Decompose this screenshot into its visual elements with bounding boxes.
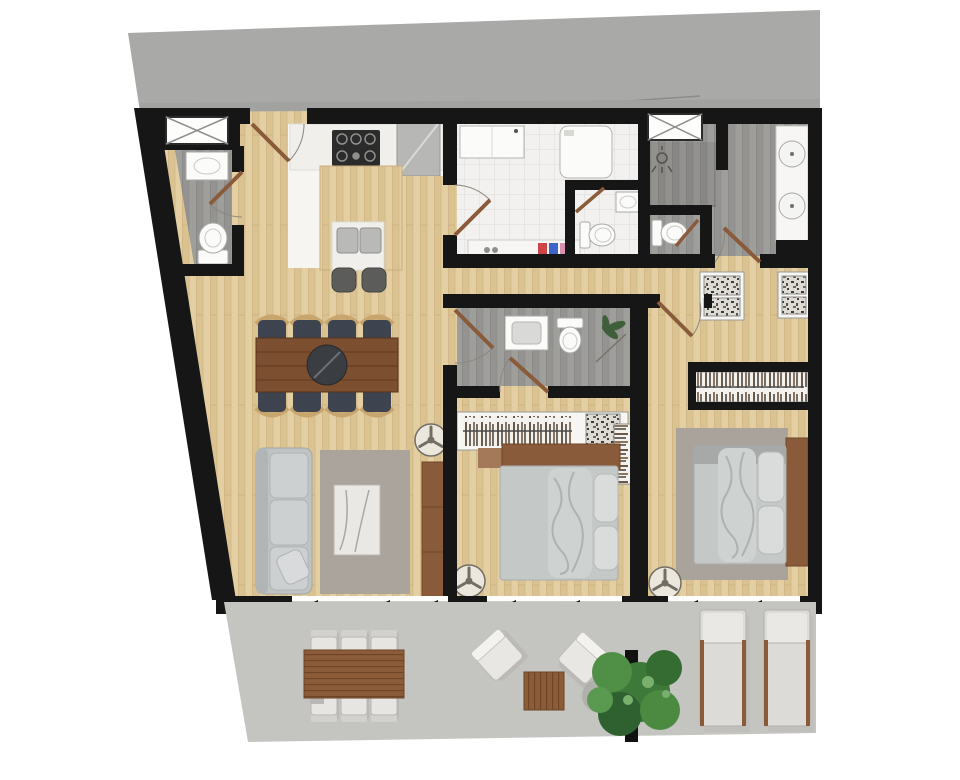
outdoor-dining-set xyxy=(304,630,404,722)
master-pillow-1 xyxy=(758,452,784,502)
master-pillow-2 xyxy=(758,506,784,554)
wall-block-vanity xyxy=(776,240,822,268)
wall-closet-bottom xyxy=(688,402,808,410)
master-bed xyxy=(694,438,808,566)
bed2-bath-basin xyxy=(512,322,541,344)
vanity-drain-1 xyxy=(790,152,794,156)
bar-stool-1 xyxy=(332,268,356,292)
outdoor-chair-5 xyxy=(341,696,369,722)
bed2-bench xyxy=(478,448,502,468)
wc1-toilet xyxy=(580,222,615,248)
street-sidewalk xyxy=(128,10,820,113)
shower-floor xyxy=(648,142,716,206)
floor-plan-page xyxy=(0,0,960,780)
street-texture xyxy=(128,10,820,112)
washer-panel xyxy=(564,130,574,136)
wall-mbath-bottom-a xyxy=(700,254,715,268)
wall-closet-cap xyxy=(688,362,696,410)
bed2-pillow-2 xyxy=(594,526,618,570)
ceiling-fan-master xyxy=(649,567,681,599)
outdoor-dining-table xyxy=(304,650,404,698)
bed2-bath-toilet xyxy=(557,318,583,353)
wall-powder-right-b xyxy=(232,225,244,266)
wall-closet-top xyxy=(688,362,808,372)
wall-bath2-bottom-a xyxy=(450,386,500,398)
wall-right xyxy=(808,108,822,614)
wall-shower-stub xyxy=(716,108,728,170)
sink-basin-right xyxy=(360,228,381,253)
sun-lounger-2 xyxy=(764,610,814,732)
tree-canopy xyxy=(587,650,682,736)
sun-lounger-1 xyxy=(700,610,750,732)
master-x-closet xyxy=(648,114,702,140)
wall-master-door-a xyxy=(648,294,660,308)
outdoor-chair-6 xyxy=(371,696,399,722)
sink-basin-left xyxy=(337,228,358,253)
master-dresser-2 xyxy=(778,272,810,318)
cabinet-knob xyxy=(514,129,518,133)
kitchen-wood-strip xyxy=(402,176,443,268)
ceiling-fan-bedroom2 xyxy=(453,565,485,597)
wall-powder-bottom xyxy=(180,264,244,276)
powder-toilet xyxy=(198,223,228,264)
coffee-table xyxy=(334,485,380,555)
wall-mbath-bottom-b xyxy=(760,254,776,268)
master-wardrobe xyxy=(690,372,808,402)
sofa xyxy=(256,448,312,594)
master-headboard xyxy=(786,438,808,566)
wall-laundry-mbath xyxy=(638,124,650,256)
wall-master-door-b xyxy=(704,294,712,308)
sideboard xyxy=(422,462,446,598)
wall-living-bed2 xyxy=(443,365,457,598)
terrace xyxy=(224,602,816,742)
wc-master-toilet xyxy=(652,220,687,246)
wall-top-main xyxy=(307,108,822,124)
wall-wc1-left xyxy=(565,190,575,256)
wall-kitchen-laundry-a xyxy=(443,108,457,185)
floor-plan-drawing xyxy=(0,0,960,780)
outdoor-chairs-bottom xyxy=(311,696,399,722)
outdoor-side-table xyxy=(524,672,564,710)
wall-wc2-top xyxy=(648,205,712,215)
ceiling-fan-living xyxy=(415,424,447,456)
bed2-pillow-1 xyxy=(594,474,618,522)
powder-sink xyxy=(186,152,228,180)
wall-wc2-right xyxy=(700,215,712,256)
wall-bed2-master xyxy=(630,294,648,598)
entry-x-closet xyxy=(166,117,228,144)
vanity-drain-2 xyxy=(790,204,794,208)
wall-bath2-top xyxy=(443,294,648,308)
wall-bath2-bottom-b xyxy=(548,386,640,398)
bar-stool-2 xyxy=(362,268,386,292)
wall-wc1-top xyxy=(565,180,645,190)
wall-laundry-bottom xyxy=(443,254,700,268)
